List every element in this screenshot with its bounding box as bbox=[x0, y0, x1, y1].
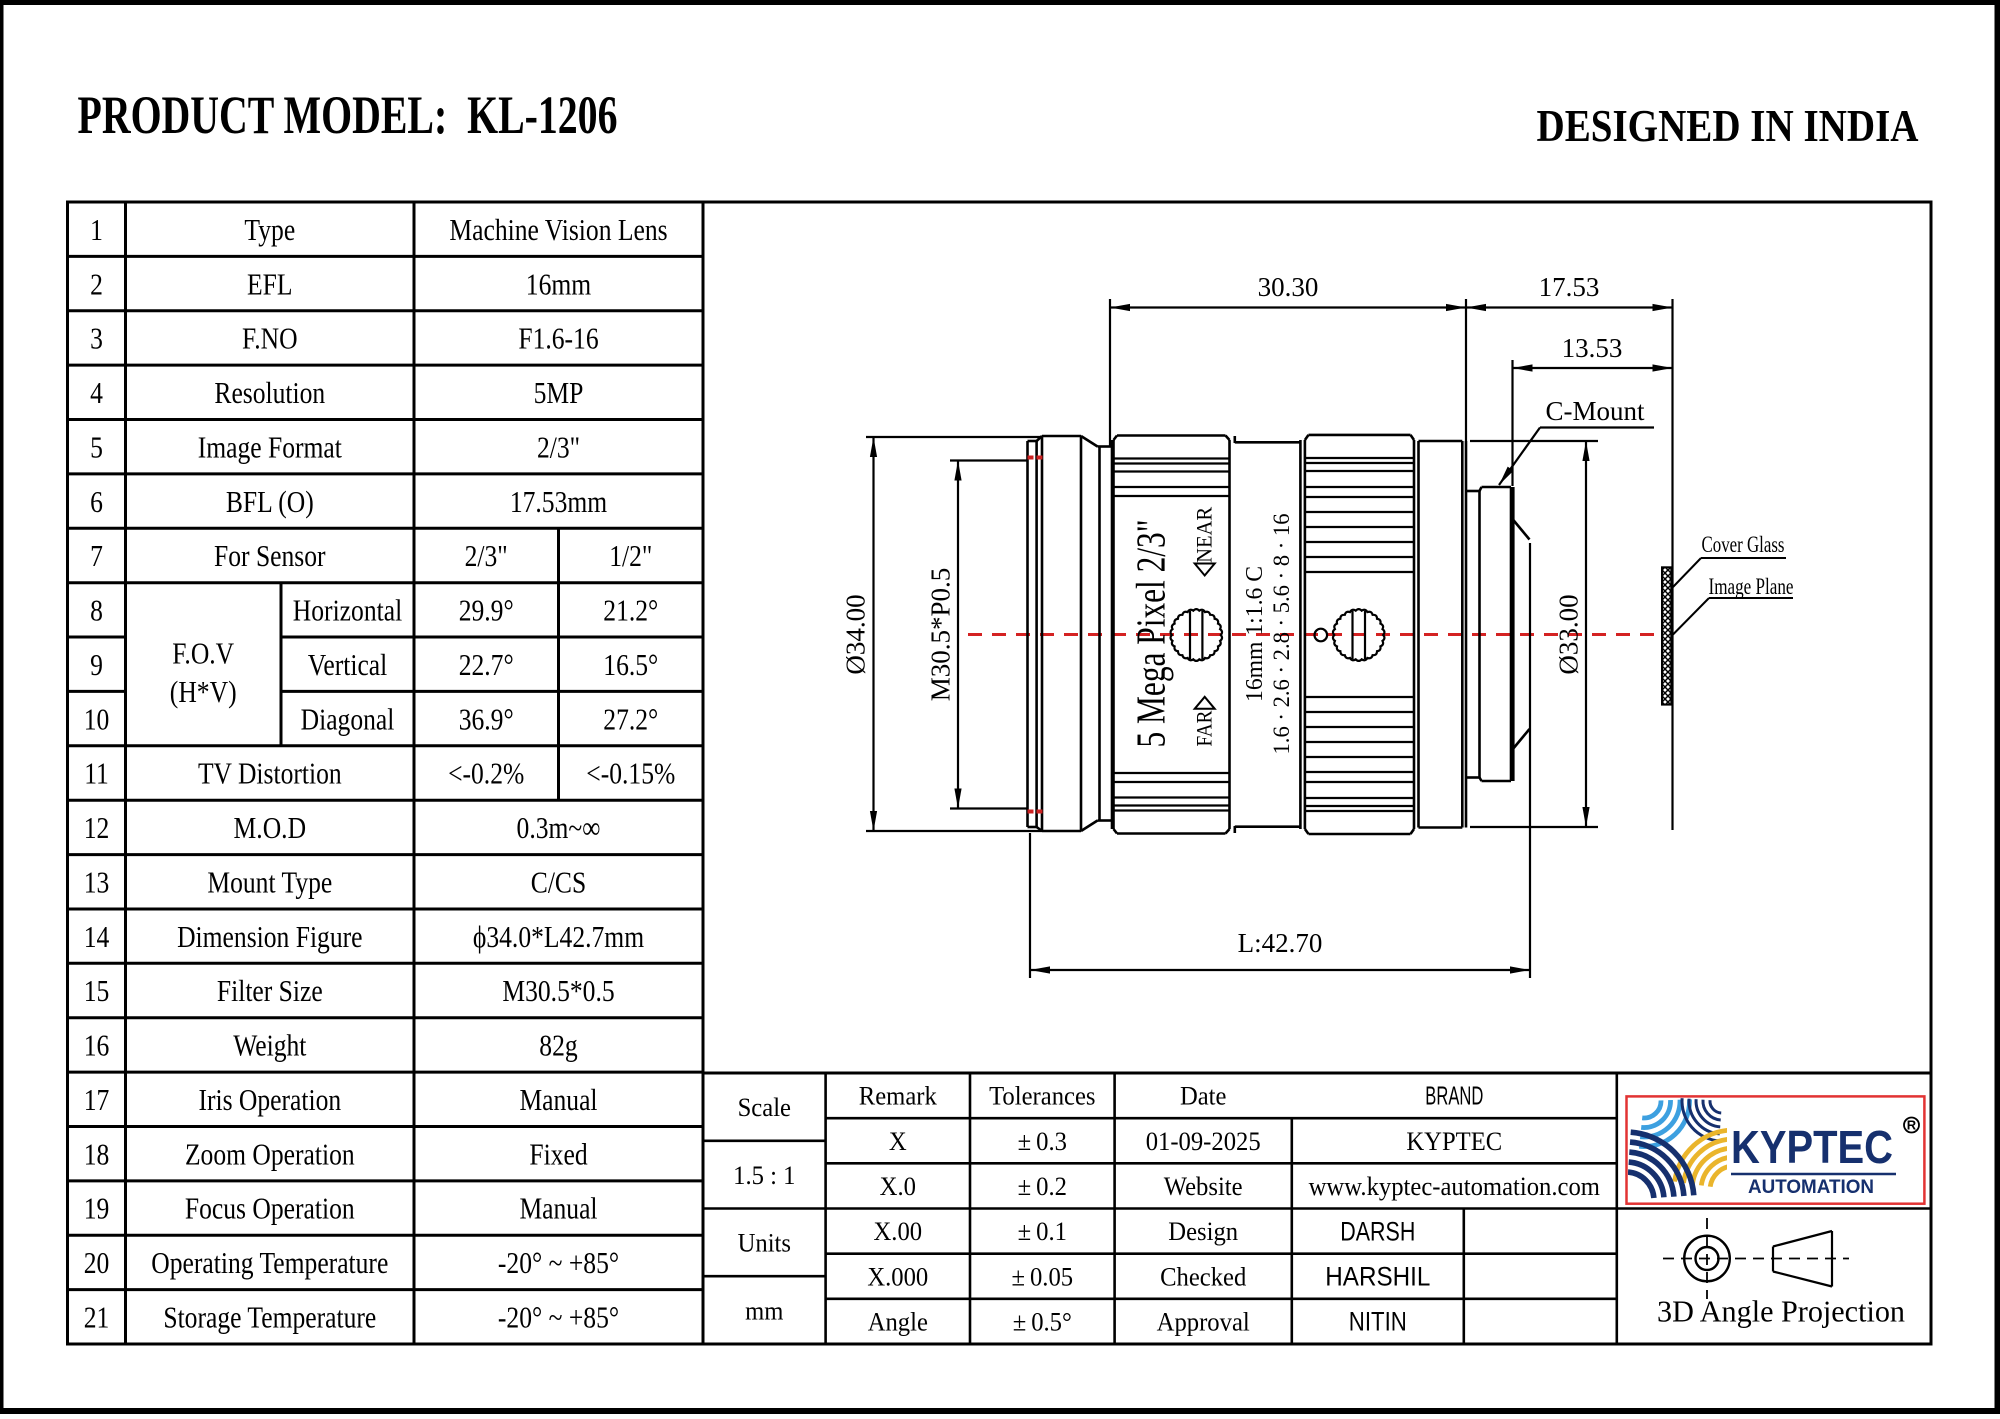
svg-text:www.kyptec-automation.com: www.kyptec-automation.com bbox=[1309, 1171, 1601, 1201]
svg-text:Dimension Figure: Dimension Figure bbox=[177, 919, 362, 954]
svg-text:5MP: 5MP bbox=[534, 375, 584, 410]
svg-text:Vertical: Vertical bbox=[308, 647, 388, 682]
svg-text:<-0.15%: <-0.15% bbox=[586, 756, 675, 791]
svg-text:8: 8 bbox=[90, 593, 103, 628]
svg-text:2/3": 2/3" bbox=[537, 429, 580, 464]
svg-text:11: 11 bbox=[84, 756, 109, 791]
svg-text:EFL: EFL bbox=[247, 266, 293, 301]
svg-text:1.5 : 1: 1.5 : 1 bbox=[733, 1160, 795, 1190]
svg-text:18: 18 bbox=[84, 1136, 110, 1171]
svg-text:36.9°: 36.9° bbox=[459, 701, 514, 736]
svg-text:13: 13 bbox=[84, 865, 110, 900]
svg-text:-20° ~ +85°: -20° ~ +85° bbox=[498, 1300, 619, 1335]
svg-text:DARSH: DARSH bbox=[1340, 1216, 1415, 1246]
svg-text:Weight: Weight bbox=[233, 1028, 307, 1063]
svg-text:01-09-2025: 01-09-2025 bbox=[1146, 1126, 1261, 1156]
svg-text:NITIN: NITIN bbox=[1349, 1307, 1407, 1337]
svg-text:Image Format: Image Format bbox=[198, 429, 343, 464]
svg-text:F.NO: F.NO bbox=[242, 321, 298, 356]
svg-text:L:42.70: L:42.70 bbox=[1238, 928, 1323, 958]
svg-text:F1.6-16: F1.6-16 bbox=[518, 321, 598, 356]
svg-text:Zoom Operation: Zoom Operation bbox=[185, 1136, 355, 1171]
svg-text:82g: 82g bbox=[539, 1028, 577, 1063]
svg-text:4: 4 bbox=[90, 375, 103, 410]
svg-text:± 0.2: ± 0.2 bbox=[1018, 1171, 1067, 1201]
svg-text:± 0.1: ± 0.1 bbox=[1018, 1216, 1067, 1246]
svg-text:Units: Units bbox=[738, 1228, 791, 1258]
svg-text:13.53: 13.53 bbox=[1562, 333, 1623, 363]
svg-text:C-Mount: C-Mount bbox=[1545, 396, 1645, 426]
svg-text:15: 15 bbox=[84, 973, 110, 1008]
svg-text:Machine Vision Lens: Machine Vision Lens bbox=[449, 212, 667, 247]
svg-text:27.2°: 27.2° bbox=[603, 701, 658, 736]
svg-text:Diagonal: Diagonal bbox=[301, 701, 395, 736]
svg-text:2: 2 bbox=[90, 266, 103, 301]
svg-text:16: 16 bbox=[84, 1028, 110, 1063]
svg-text:10: 10 bbox=[84, 701, 110, 736]
svg-text:± 0.5°: ± 0.5° bbox=[1013, 1307, 1072, 1337]
svg-text:3D Angle Projection: 3D Angle Projection bbox=[1657, 1294, 1905, 1329]
svg-text:± 0.3: ± 0.3 bbox=[1018, 1126, 1067, 1156]
svg-text:20: 20 bbox=[84, 1245, 110, 1280]
svg-text:(H*V): (H*V) bbox=[170, 674, 237, 709]
svg-text:Date: Date bbox=[1180, 1081, 1227, 1111]
svg-text:Angle: Angle bbox=[868, 1307, 928, 1337]
svg-text:<-0.2%: <-0.2% bbox=[448, 756, 524, 791]
svg-text:21: 21 bbox=[84, 1300, 110, 1335]
svg-text:Manual: Manual bbox=[519, 1191, 597, 1226]
svg-text:Manual: Manual bbox=[519, 1082, 597, 1117]
svg-text:0.3m~∞: 0.3m~∞ bbox=[517, 810, 601, 845]
svg-text:Image Plane: Image Plane bbox=[1709, 574, 1794, 599]
svg-text:29.9°: 29.9° bbox=[459, 593, 514, 628]
svg-text:12: 12 bbox=[84, 810, 110, 845]
svg-text:17: 17 bbox=[84, 1082, 110, 1117]
svg-text:16mm 1:1.6 C: 16mm 1:1.6 C bbox=[1242, 566, 1268, 702]
svg-text:M30.5*P0.5: M30.5*P0.5 bbox=[925, 568, 955, 702]
svg-text:HARSHIL: HARSHIL bbox=[1325, 1262, 1430, 1292]
svg-text:1/2": 1/2" bbox=[609, 538, 652, 573]
svg-text:7: 7 bbox=[90, 538, 103, 573]
svg-text:Remark: Remark bbox=[859, 1081, 938, 1111]
svg-text:FAR: FAR bbox=[1192, 710, 1217, 746]
svg-text:Filter Size: Filter Size bbox=[217, 973, 323, 1008]
svg-text:Ø33.00: Ø33.00 bbox=[1553, 594, 1583, 674]
svg-text:Tolerances: Tolerances bbox=[989, 1081, 1095, 1111]
svg-text:M.O.D: M.O.D bbox=[234, 810, 307, 845]
svg-text:5: 5 bbox=[90, 429, 103, 464]
svg-text:6: 6 bbox=[90, 484, 103, 519]
svg-text:Cover Glass: Cover Glass bbox=[1702, 532, 1785, 557]
svg-text:Checked: Checked bbox=[1160, 1261, 1246, 1291]
svg-text:KYPTEC: KYPTEC bbox=[1406, 1126, 1502, 1156]
svg-text:Scale: Scale bbox=[738, 1092, 791, 1122]
svg-text:X.0: X.0 bbox=[880, 1171, 916, 1201]
svg-text:Focus Operation: Focus Operation bbox=[185, 1191, 355, 1226]
svg-text:3: 3 bbox=[90, 321, 103, 356]
svg-text:Design: Design bbox=[1168, 1216, 1238, 1246]
svg-text:Type: Type bbox=[244, 212, 295, 247]
svg-text:2/3": 2/3" bbox=[465, 538, 508, 573]
svg-text:Horizontal: Horizontal bbox=[293, 593, 402, 628]
svg-text:Website: Website bbox=[1164, 1171, 1243, 1201]
svg-text:17.53mm: 17.53mm bbox=[510, 484, 607, 519]
svg-text:± 0.05: ± 0.05 bbox=[1012, 1261, 1074, 1291]
svg-text:F.O.V: F.O.V bbox=[172, 635, 234, 670]
svg-text:Mount Type: Mount Type bbox=[207, 865, 332, 900]
svg-text:21.2°: 21.2° bbox=[603, 593, 658, 628]
svg-text:1.6 · 2.6 · 2.8 · 5.6 · 8 · 16: 1.6 · 2.6 · 2.8 · 5.6 · 8 · 16 bbox=[1269, 514, 1294, 755]
svg-text:Storage Temperature: Storage Temperature bbox=[163, 1300, 376, 1335]
svg-text:Fixed: Fixed bbox=[529, 1136, 588, 1171]
svg-text:M30.5*0.5: M30.5*0.5 bbox=[502, 973, 614, 1008]
svg-text:19: 19 bbox=[84, 1191, 110, 1226]
svg-text:TV Distortion: TV Distortion bbox=[198, 756, 342, 791]
svg-text:Approval: Approval bbox=[1157, 1307, 1250, 1337]
svg-text:For Sensor: For Sensor bbox=[214, 538, 326, 573]
svg-text:DESIGNED IN INDIA: DESIGNED IN INDIA bbox=[1537, 100, 1919, 151]
svg-text:R: R bbox=[1907, 1118, 1917, 1133]
svg-text:Ø34.00: Ø34.00 bbox=[840, 594, 870, 674]
svg-text:BRAND: BRAND bbox=[1425, 1081, 1483, 1111]
svg-text:AUTOMATION: AUTOMATION bbox=[1748, 1177, 1874, 1198]
svg-text:C/CS: C/CS bbox=[531, 865, 586, 900]
svg-text:9: 9 bbox=[90, 647, 103, 682]
svg-text:mm: mm bbox=[745, 1295, 784, 1325]
svg-text:1: 1 bbox=[90, 212, 103, 247]
svg-text:14: 14 bbox=[84, 919, 110, 954]
svg-text:Resolution: Resolution bbox=[214, 375, 325, 410]
svg-text:22.7°: 22.7° bbox=[459, 647, 514, 682]
svg-text:X.00: X.00 bbox=[874, 1216, 923, 1246]
svg-text:Iris Operation: Iris Operation bbox=[198, 1082, 341, 1117]
svg-text:KYPTEC: KYPTEC bbox=[1731, 1121, 1893, 1173]
svg-text:17.53: 17.53 bbox=[1539, 272, 1600, 302]
svg-text:30.30: 30.30 bbox=[1258, 272, 1319, 302]
svg-text:BFL (O): BFL (O) bbox=[226, 484, 314, 519]
svg-text:-20° ~ +85°: -20° ~ +85° bbox=[498, 1245, 619, 1280]
svg-text:X: X bbox=[889, 1126, 907, 1156]
svg-text:ϕ34.0*L42.7mm: ϕ34.0*L42.7mm bbox=[473, 919, 644, 954]
svg-text:NEAR: NEAR bbox=[1192, 507, 1217, 563]
svg-text:Operating Temperature: Operating Temperature bbox=[151, 1245, 388, 1280]
svg-text:16mm: 16mm bbox=[526, 266, 591, 301]
svg-text:PRODUCT MODEL: KL-1206: PRODUCT MODEL: KL-1206 bbox=[78, 85, 618, 145]
svg-text:16.5°: 16.5° bbox=[603, 647, 658, 682]
svg-text:5 Mega Pixel 2/3": 5 Mega Pixel 2/3" bbox=[1128, 520, 1174, 748]
svg-text:X.000: X.000 bbox=[867, 1261, 928, 1291]
